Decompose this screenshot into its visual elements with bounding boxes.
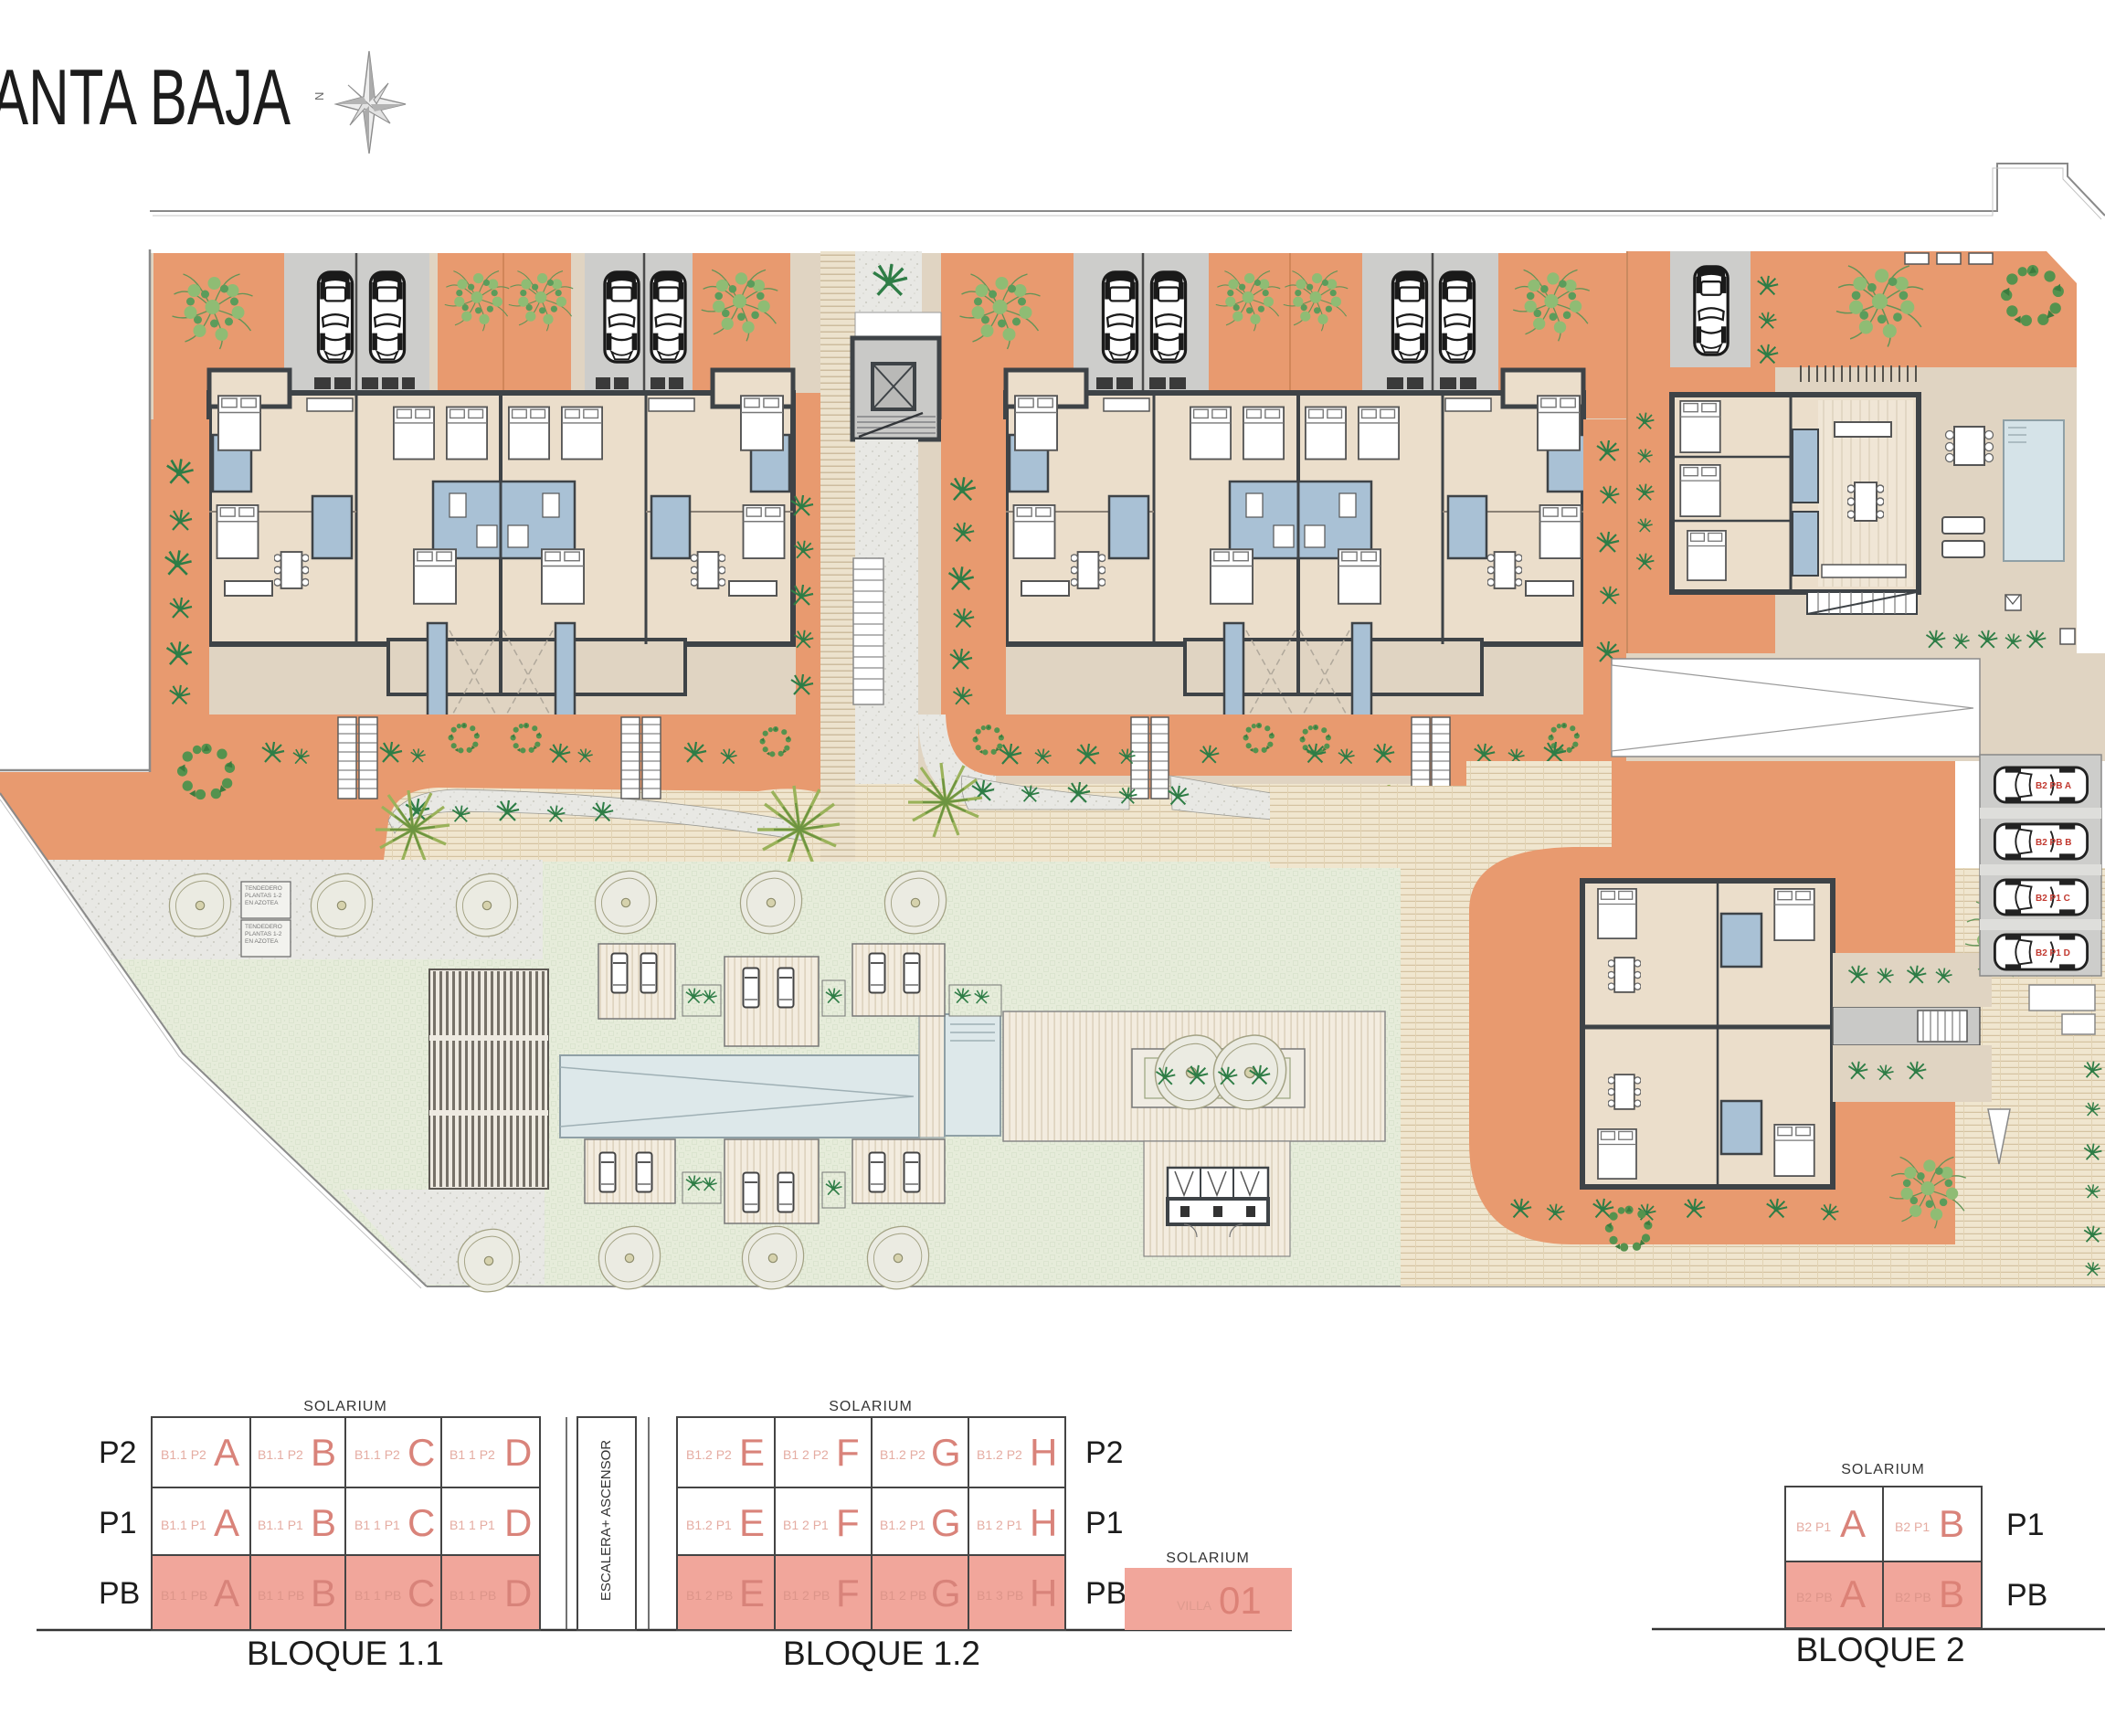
svg-text:C: C bbox=[407, 1431, 435, 1474]
svg-text:B1 1 PB: B1 1 PB bbox=[161, 1588, 207, 1603]
svg-text:B1.2 P1: B1.2 P1 bbox=[880, 1518, 926, 1532]
svg-text:BLOQUE 1.2: BLOQUE 1.2 bbox=[783, 1635, 980, 1672]
svg-text:E: E bbox=[739, 1572, 765, 1614]
svg-text:P1: P1 bbox=[99, 1506, 137, 1540]
svg-text:H: H bbox=[1030, 1501, 1057, 1544]
svg-text:B1 2 PB: B1 2 PB bbox=[783, 1588, 830, 1603]
svg-text:A: A bbox=[214, 1572, 239, 1614]
svg-text:ESCALERA+ ASCENSOR: ESCALERA+ ASCENSOR bbox=[598, 1440, 614, 1601]
svg-text:B2 P1 C: B2 P1 C bbox=[2036, 894, 2070, 904]
svg-text:B1 1 PB: B1 1 PB bbox=[450, 1588, 496, 1603]
svg-text:A: A bbox=[1840, 1502, 1866, 1545]
svg-text:H: H bbox=[1030, 1572, 1057, 1614]
svg-text:G: G bbox=[931, 1501, 961, 1544]
svg-text:B: B bbox=[311, 1501, 336, 1544]
svg-text:B1.1 P2: B1.1 P2 bbox=[354, 1447, 400, 1462]
svg-text:B: B bbox=[311, 1572, 336, 1614]
svg-text:B1 2 PB: B1 2 PB bbox=[686, 1588, 733, 1603]
svg-text:C: C bbox=[407, 1572, 435, 1614]
svg-text:SOLARIUM: SOLARIUM bbox=[1166, 1551, 1250, 1566]
svg-text:VILLA: VILLA bbox=[1177, 1598, 1212, 1613]
svg-text:B1 2 P1: B1 2 P1 bbox=[977, 1518, 1022, 1532]
svg-text:B1.1 P1: B1.1 P1 bbox=[258, 1518, 303, 1532]
svg-text:G: G bbox=[931, 1572, 961, 1614]
svg-text:F: F bbox=[836, 1501, 860, 1544]
svg-text:B2 P1: B2 P1 bbox=[1895, 1519, 1930, 1534]
svg-text:B: B bbox=[311, 1431, 336, 1474]
svg-text:PB: PB bbox=[2006, 1578, 2047, 1613]
svg-text:PB: PB bbox=[1085, 1576, 1127, 1611]
svg-text:P1: P1 bbox=[2006, 1508, 2045, 1542]
svg-text:B1 1 PB: B1 1 PB bbox=[354, 1588, 401, 1603]
svg-text:B1.2 P2: B1.2 P2 bbox=[880, 1447, 926, 1462]
svg-text:EN AZOTEA: EN AZOTEA bbox=[245, 938, 279, 945]
svg-text:E: E bbox=[739, 1501, 765, 1544]
svg-text:ANTA BAJA: ANTA BAJA bbox=[0, 54, 291, 142]
svg-text:A: A bbox=[214, 1501, 239, 1544]
svg-text:D: D bbox=[504, 1572, 532, 1614]
svg-text:SOLARIUM: SOLARIUM bbox=[829, 1399, 913, 1414]
svg-text:TENDEDERO: TENDEDERO bbox=[245, 924, 282, 930]
svg-text:E: E bbox=[739, 1431, 765, 1474]
svg-text:B1 1 P2: B1 1 P2 bbox=[450, 1447, 495, 1462]
svg-text:B1 2 P2: B1 2 P2 bbox=[783, 1447, 829, 1462]
svg-text:B: B bbox=[1939, 1502, 1964, 1545]
svg-text:D: D bbox=[504, 1431, 532, 1474]
svg-text:P1: P1 bbox=[1085, 1506, 1124, 1540]
svg-text:F: F bbox=[836, 1572, 860, 1614]
svg-text:EN AZOTEA: EN AZOTEA bbox=[245, 900, 279, 906]
svg-text:N: N bbox=[312, 92, 326, 101]
svg-text:B2 P1: B2 P1 bbox=[1796, 1519, 1831, 1534]
svg-text:B1 1 P1: B1 1 P1 bbox=[354, 1518, 400, 1532]
svg-text:PLANTAS 1-2: PLANTAS 1-2 bbox=[245, 893, 282, 899]
svg-text:B1.1 P2: B1.1 P2 bbox=[161, 1447, 206, 1462]
svg-text:BLOQUE 2: BLOQUE 2 bbox=[1795, 1631, 1964, 1668]
svg-text:H: H bbox=[1030, 1431, 1057, 1474]
svg-text:C: C bbox=[407, 1501, 435, 1544]
svg-text:B1.2 P2: B1.2 P2 bbox=[686, 1447, 732, 1462]
svg-text:B1 1 PB: B1 1 PB bbox=[258, 1588, 304, 1603]
svg-text:B2 PB A: B2 PB A bbox=[2036, 781, 2071, 791]
svg-text:B: B bbox=[1939, 1572, 1964, 1615]
svg-text:B2 P1 D: B2 P1 D bbox=[2036, 948, 2070, 958]
svg-text:B1.2 P2: B1.2 P2 bbox=[977, 1447, 1022, 1462]
svg-text:B1 2 PB: B1 2 PB bbox=[880, 1588, 926, 1603]
svg-text:PLANTAS 1-2: PLANTAS 1-2 bbox=[245, 931, 282, 937]
svg-text:B2 PB: B2 PB bbox=[1895, 1590, 1931, 1604]
svg-text:B1 1 P1: B1 1 P1 bbox=[450, 1518, 495, 1532]
svg-text:B1.1 P1: B1.1 P1 bbox=[161, 1518, 206, 1532]
svg-text:B1 2 P1: B1 2 P1 bbox=[783, 1518, 829, 1532]
svg-text:PB: PB bbox=[99, 1576, 140, 1611]
svg-text:B1.1 P2: B1.1 P2 bbox=[258, 1447, 303, 1462]
svg-text:B1 3 PB: B1 3 PB bbox=[977, 1588, 1023, 1603]
svg-text:G: G bbox=[931, 1431, 961, 1474]
svg-text:SOLARIUM: SOLARIUM bbox=[303, 1399, 387, 1414]
svg-text:B2 PB: B2 PB bbox=[1796, 1590, 1833, 1604]
svg-text:BLOQUE 1.1: BLOQUE 1.1 bbox=[247, 1635, 444, 1672]
svg-text:P2: P2 bbox=[1085, 1435, 1124, 1470]
svg-text:TENDEDERO: TENDEDERO bbox=[245, 885, 282, 892]
svg-text:P2: P2 bbox=[99, 1435, 137, 1470]
svg-text:B2 PB B: B2 PB B bbox=[2036, 838, 2071, 848]
svg-text:01: 01 bbox=[1219, 1579, 1262, 1622]
svg-text:A: A bbox=[1840, 1572, 1866, 1615]
svg-text:B1.2 P1: B1.2 P1 bbox=[686, 1518, 732, 1532]
svg-text:SOLARIUM: SOLARIUM bbox=[1841, 1462, 1925, 1477]
svg-text:D: D bbox=[504, 1501, 532, 1544]
svg-text:F: F bbox=[836, 1431, 860, 1474]
svg-text:A: A bbox=[214, 1431, 239, 1474]
